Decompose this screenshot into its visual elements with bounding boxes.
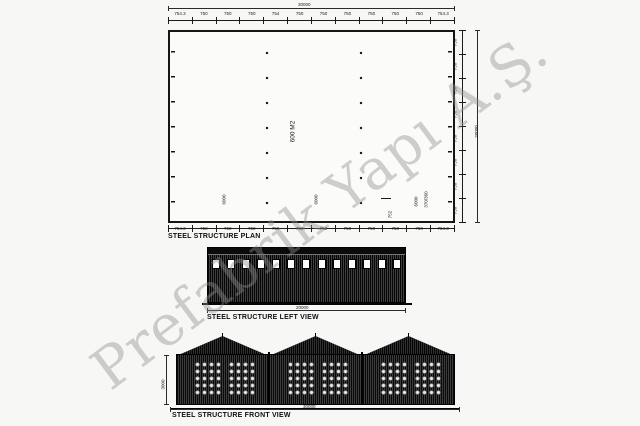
glass-block-grid bbox=[228, 361, 256, 396]
window bbox=[378, 259, 386, 269]
front-view-caption: STEEL STRUCTURE FRONT VIEW bbox=[172, 412, 291, 419]
plan-offset-tick bbox=[381, 198, 391, 199]
drawing-sheet: 30000 754.375075075075475075075075075075… bbox=[0, 0, 640, 426]
ridge-tick bbox=[408, 333, 409, 337]
plan-offset-label: 752 bbox=[386, 203, 394, 221]
left-view-elevation bbox=[207, 247, 406, 303]
plan-top-dim-chain bbox=[168, 17, 455, 24]
front-view-height-label: 3000 bbox=[158, 373, 168, 391]
plan-frame-note: 370/360 bbox=[418, 188, 434, 206]
plan-interior-column-row-2 bbox=[359, 51, 363, 211]
window bbox=[348, 259, 356, 269]
window bbox=[287, 259, 295, 269]
window bbox=[318, 259, 326, 269]
left-view-window-row bbox=[212, 259, 401, 269]
glass-block-grid bbox=[194, 361, 222, 396]
ridge-tick bbox=[315, 333, 316, 337]
window bbox=[272, 259, 280, 269]
plan-overall-width-label: 30000 bbox=[298, 2, 311, 7]
left-view-roof-fascia bbox=[208, 248, 405, 255]
window bbox=[227, 259, 235, 269]
left-view-length-label: 20000 bbox=[296, 305, 309, 310]
window bbox=[257, 259, 265, 269]
glass-block-grid bbox=[414, 361, 442, 396]
front-view-bay-separator bbox=[361, 352, 363, 405]
plan-left-wall-column-ticks bbox=[171, 51, 175, 211]
left-view-dim-line bbox=[207, 310, 406, 311]
window bbox=[212, 259, 220, 269]
plan-top-chain-labels: 754.3750750750754750750750750750750754.3 bbox=[168, 11, 455, 16]
window bbox=[333, 259, 341, 269]
front-view-bay-separator bbox=[268, 352, 270, 405]
plan-right-dim-chain bbox=[459, 30, 466, 223]
window bbox=[393, 259, 401, 269]
front-view-gable-roof-3 bbox=[362, 336, 455, 356]
plan-bay-label-1: 6000 bbox=[219, 188, 229, 206]
window bbox=[302, 259, 310, 269]
plan-interior-column-row-1 bbox=[265, 51, 269, 211]
plan-area-label: 600 M2 bbox=[282, 120, 304, 138]
glass-block-grid bbox=[321, 361, 349, 396]
window bbox=[242, 259, 250, 269]
plan-right-chain-labels: 750 750 750 750 750 750 750 750 bbox=[452, 30, 458, 223]
glass-block-grid bbox=[287, 361, 315, 396]
plan-overall-height-label: 20000 bbox=[470, 120, 483, 138]
ridge-tick bbox=[222, 333, 223, 337]
front-view-width-label: 30000 bbox=[303, 404, 316, 409]
plan-caption: STEEL STRUCTURE PLAN bbox=[168, 233, 261, 240]
plan-bay-label-2: 6000 bbox=[311, 188, 321, 206]
plan-overall-width-dim-line bbox=[168, 8, 455, 9]
window bbox=[363, 259, 371, 269]
front-view-gable-roof-1 bbox=[176, 336, 269, 356]
front-view-dim-line bbox=[170, 409, 460, 410]
plan-bottom-chain-labels: 754.3750750750750750750750750750750754.3 bbox=[168, 226, 455, 231]
front-view-gable-roof-2 bbox=[269, 336, 362, 356]
left-view-caption: STEEL STRUCTURE LEFT VIEW bbox=[207, 314, 319, 321]
glass-block-grid bbox=[380, 361, 408, 396]
